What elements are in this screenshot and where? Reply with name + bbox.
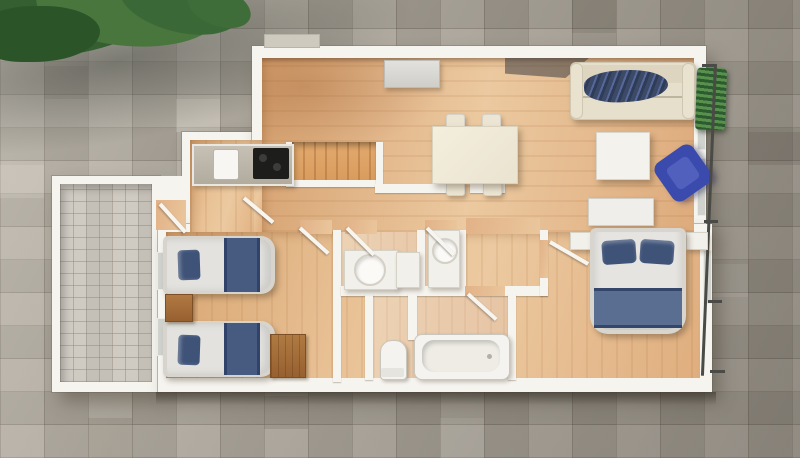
vanity-basin [354, 254, 386, 286]
railing-stub [702, 64, 715, 67]
cooktop-burner [273, 163, 281, 171]
railing-stub [708, 300, 722, 303]
toilet-partition-wall [408, 294, 417, 340]
stair-wall-right [376, 142, 383, 187]
single-bed-pillow [177, 335, 200, 366]
dresser [588, 198, 654, 226]
master-bed-runner [594, 288, 682, 328]
sofa-armrest [682, 63, 695, 119]
cooktop [253, 148, 289, 179]
staircase-treads [292, 142, 376, 180]
master-bed-pillow [601, 239, 637, 265]
building-ground-shadow [156, 392, 716, 405]
dining-table [432, 126, 518, 184]
wc-basin-bowl [432, 238, 458, 264]
railing-stub [704, 220, 718, 223]
sideboard [384, 60, 440, 88]
single-bed-pillow [177, 250, 200, 281]
kitchen-sink [213, 149, 239, 180]
single-bed-runner [224, 238, 260, 292]
patio-floor [60, 184, 152, 382]
entrance-step [264, 34, 320, 48]
twin-bedroom-right-wall [333, 230, 341, 382]
bathtub-drain [487, 354, 492, 359]
railing-stub [710, 370, 725, 373]
wooden-nightstand [165, 294, 193, 322]
single-bed-runner [224, 323, 260, 375]
nightstand [570, 232, 592, 250]
nightstand [686, 232, 708, 250]
toilet-tank [381, 368, 404, 377]
doorway-master-bedroom [540, 240, 548, 278]
bathroom-cabinet [396, 252, 420, 288]
coffee-table [596, 132, 650, 180]
hallway-opening [466, 218, 540, 234]
family-bathroom-left-wall [365, 294, 373, 380]
floor-plan-scene [0, 0, 800, 458]
stair-wall-bottom [286, 180, 382, 187]
master-bed-pillow [639, 239, 675, 265]
cooktop-burner [259, 154, 267, 162]
sofa-armrest [570, 63, 583, 119]
wooden-chest [270, 334, 306, 378]
